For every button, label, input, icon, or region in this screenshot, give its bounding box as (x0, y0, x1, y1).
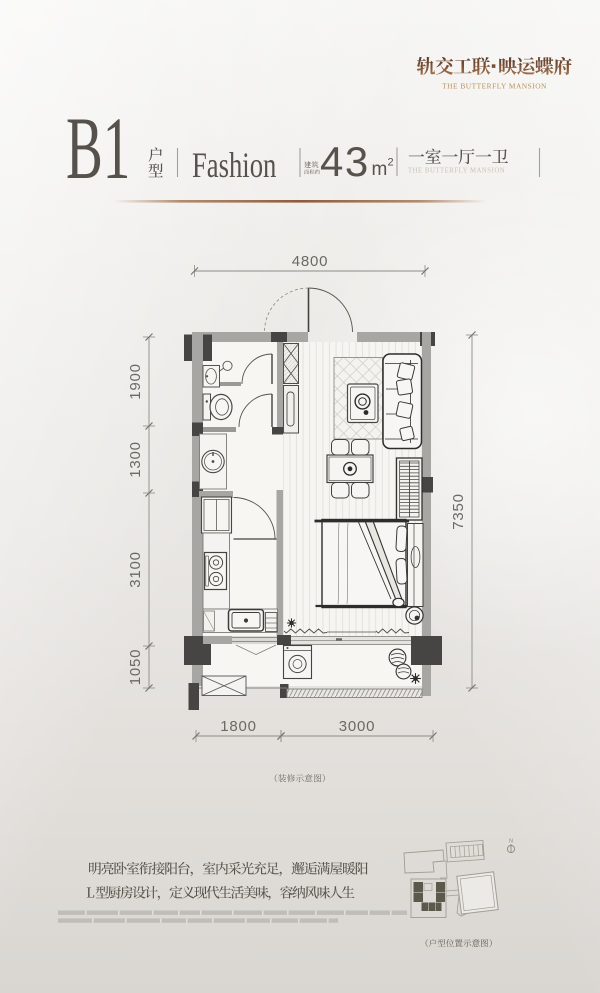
svg-text:1800: 1800 (220, 718, 257, 735)
svg-text:1900: 1900 (127, 363, 144, 400)
svg-text:m: m (372, 159, 388, 180)
svg-text:Fashion: Fashion (192, 145, 276, 185)
svg-text:7350: 7350 (450, 493, 467, 530)
svg-text:THE BUTTERFLY MANSION: THE BUTTERFLY MANSION (442, 82, 547, 91)
svg-text:43: 43 (320, 138, 370, 185)
svg-text:THE BUTTERFLY MANSION: THE BUTTERFLY MANSION (408, 168, 505, 175)
svg-text:3000: 3000 (339, 718, 376, 735)
svg-text:1300: 1300 (127, 441, 144, 478)
svg-text:N: N (509, 839, 513, 845)
svg-text:4800: 4800 (292, 253, 329, 270)
svg-text:B1: B1 (66, 100, 130, 199)
svg-text:1050: 1050 (127, 649, 144, 686)
svg-text:3100: 3100 (127, 551, 144, 588)
svg-text:2: 2 (388, 157, 394, 169)
